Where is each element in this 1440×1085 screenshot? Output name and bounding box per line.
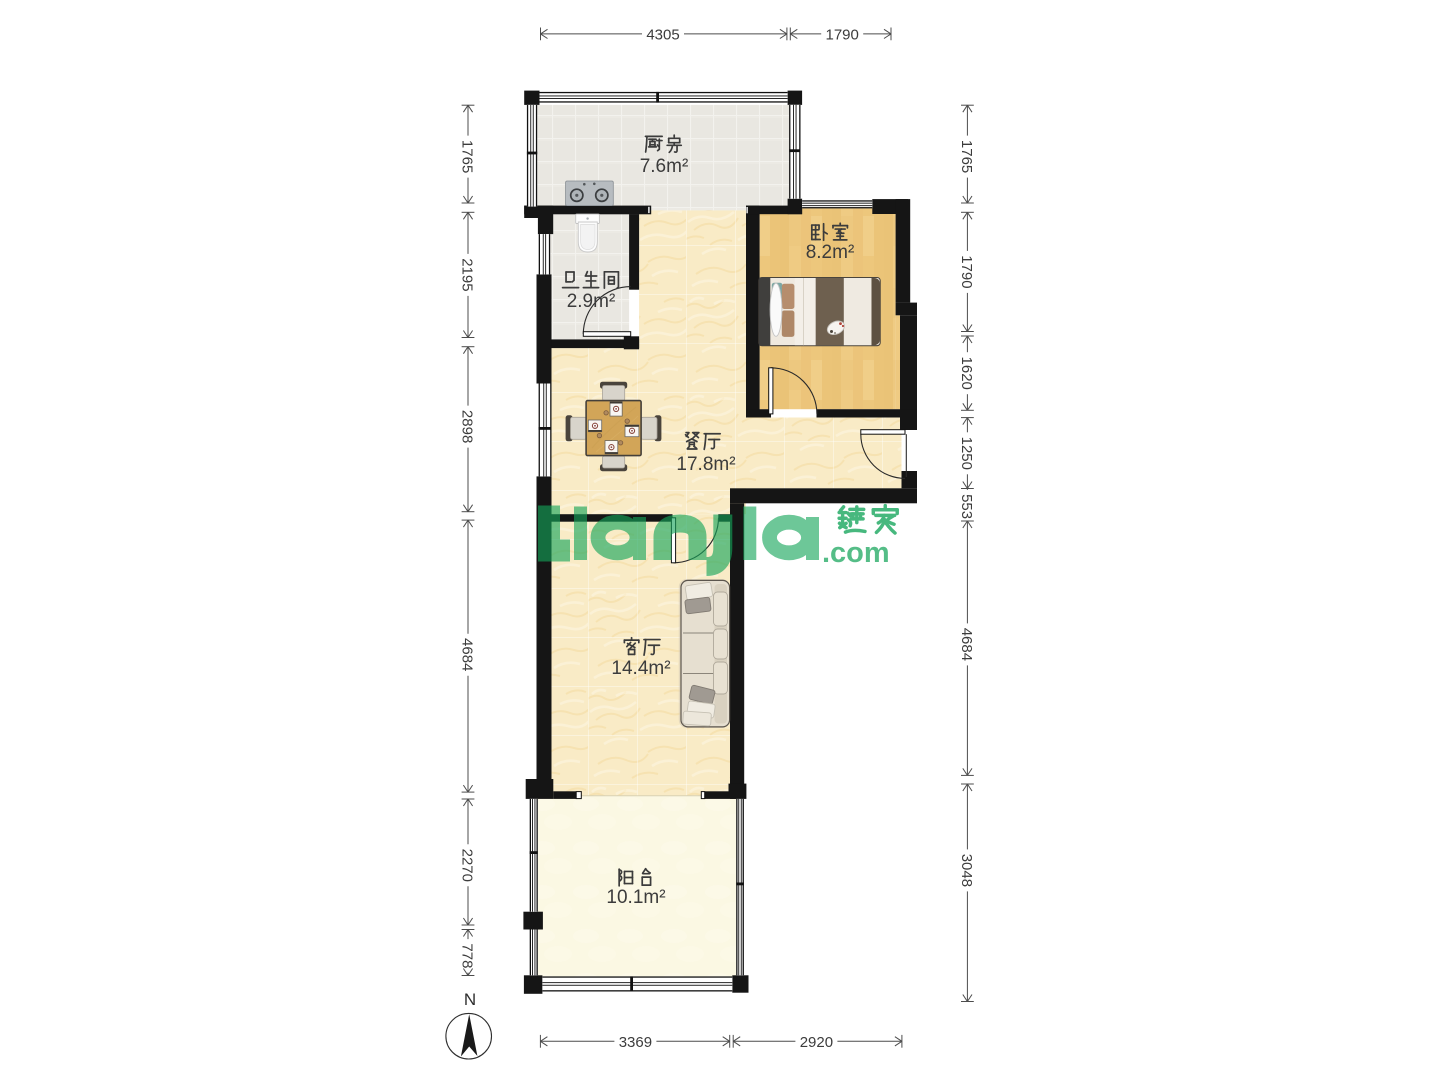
svg-text:4684: 4684 (958, 628, 975, 661)
svg-text:3048: 3048 (958, 854, 975, 887)
svg-text:3369: 3369 (619, 1034, 652, 1051)
svg-text:1790: 1790 (826, 26, 859, 43)
svg-text:2195: 2195 (459, 258, 476, 291)
svg-text:14.4m²: 14.4m² (611, 658, 670, 679)
svg-text:1620: 1620 (958, 357, 975, 390)
svg-text:778: 778 (459, 943, 476, 968)
svg-text:.com: .com (822, 537, 890, 569)
svg-text:1765: 1765 (958, 140, 975, 173)
svg-text:4684: 4684 (459, 638, 476, 671)
svg-text:1790: 1790 (958, 255, 975, 288)
svg-text:17.8m²: 17.8m² (676, 454, 735, 475)
svg-text:2920: 2920 (800, 1034, 833, 1051)
svg-text:8.2m²: 8.2m² (806, 242, 855, 263)
svg-text:4305: 4305 (646, 26, 679, 43)
svg-text:2898: 2898 (459, 410, 476, 443)
svg-text:N: N (464, 990, 476, 1009)
svg-text:1765: 1765 (459, 140, 476, 173)
svg-text:7.6m²: 7.6m² (640, 156, 689, 177)
svg-text:1250: 1250 (958, 437, 975, 470)
svg-text:2270: 2270 (459, 849, 476, 882)
svg-text:553: 553 (958, 494, 975, 519)
svg-text:2.9m²: 2.9m² (567, 291, 616, 312)
svg-text:10.1m²: 10.1m² (606, 887, 665, 908)
